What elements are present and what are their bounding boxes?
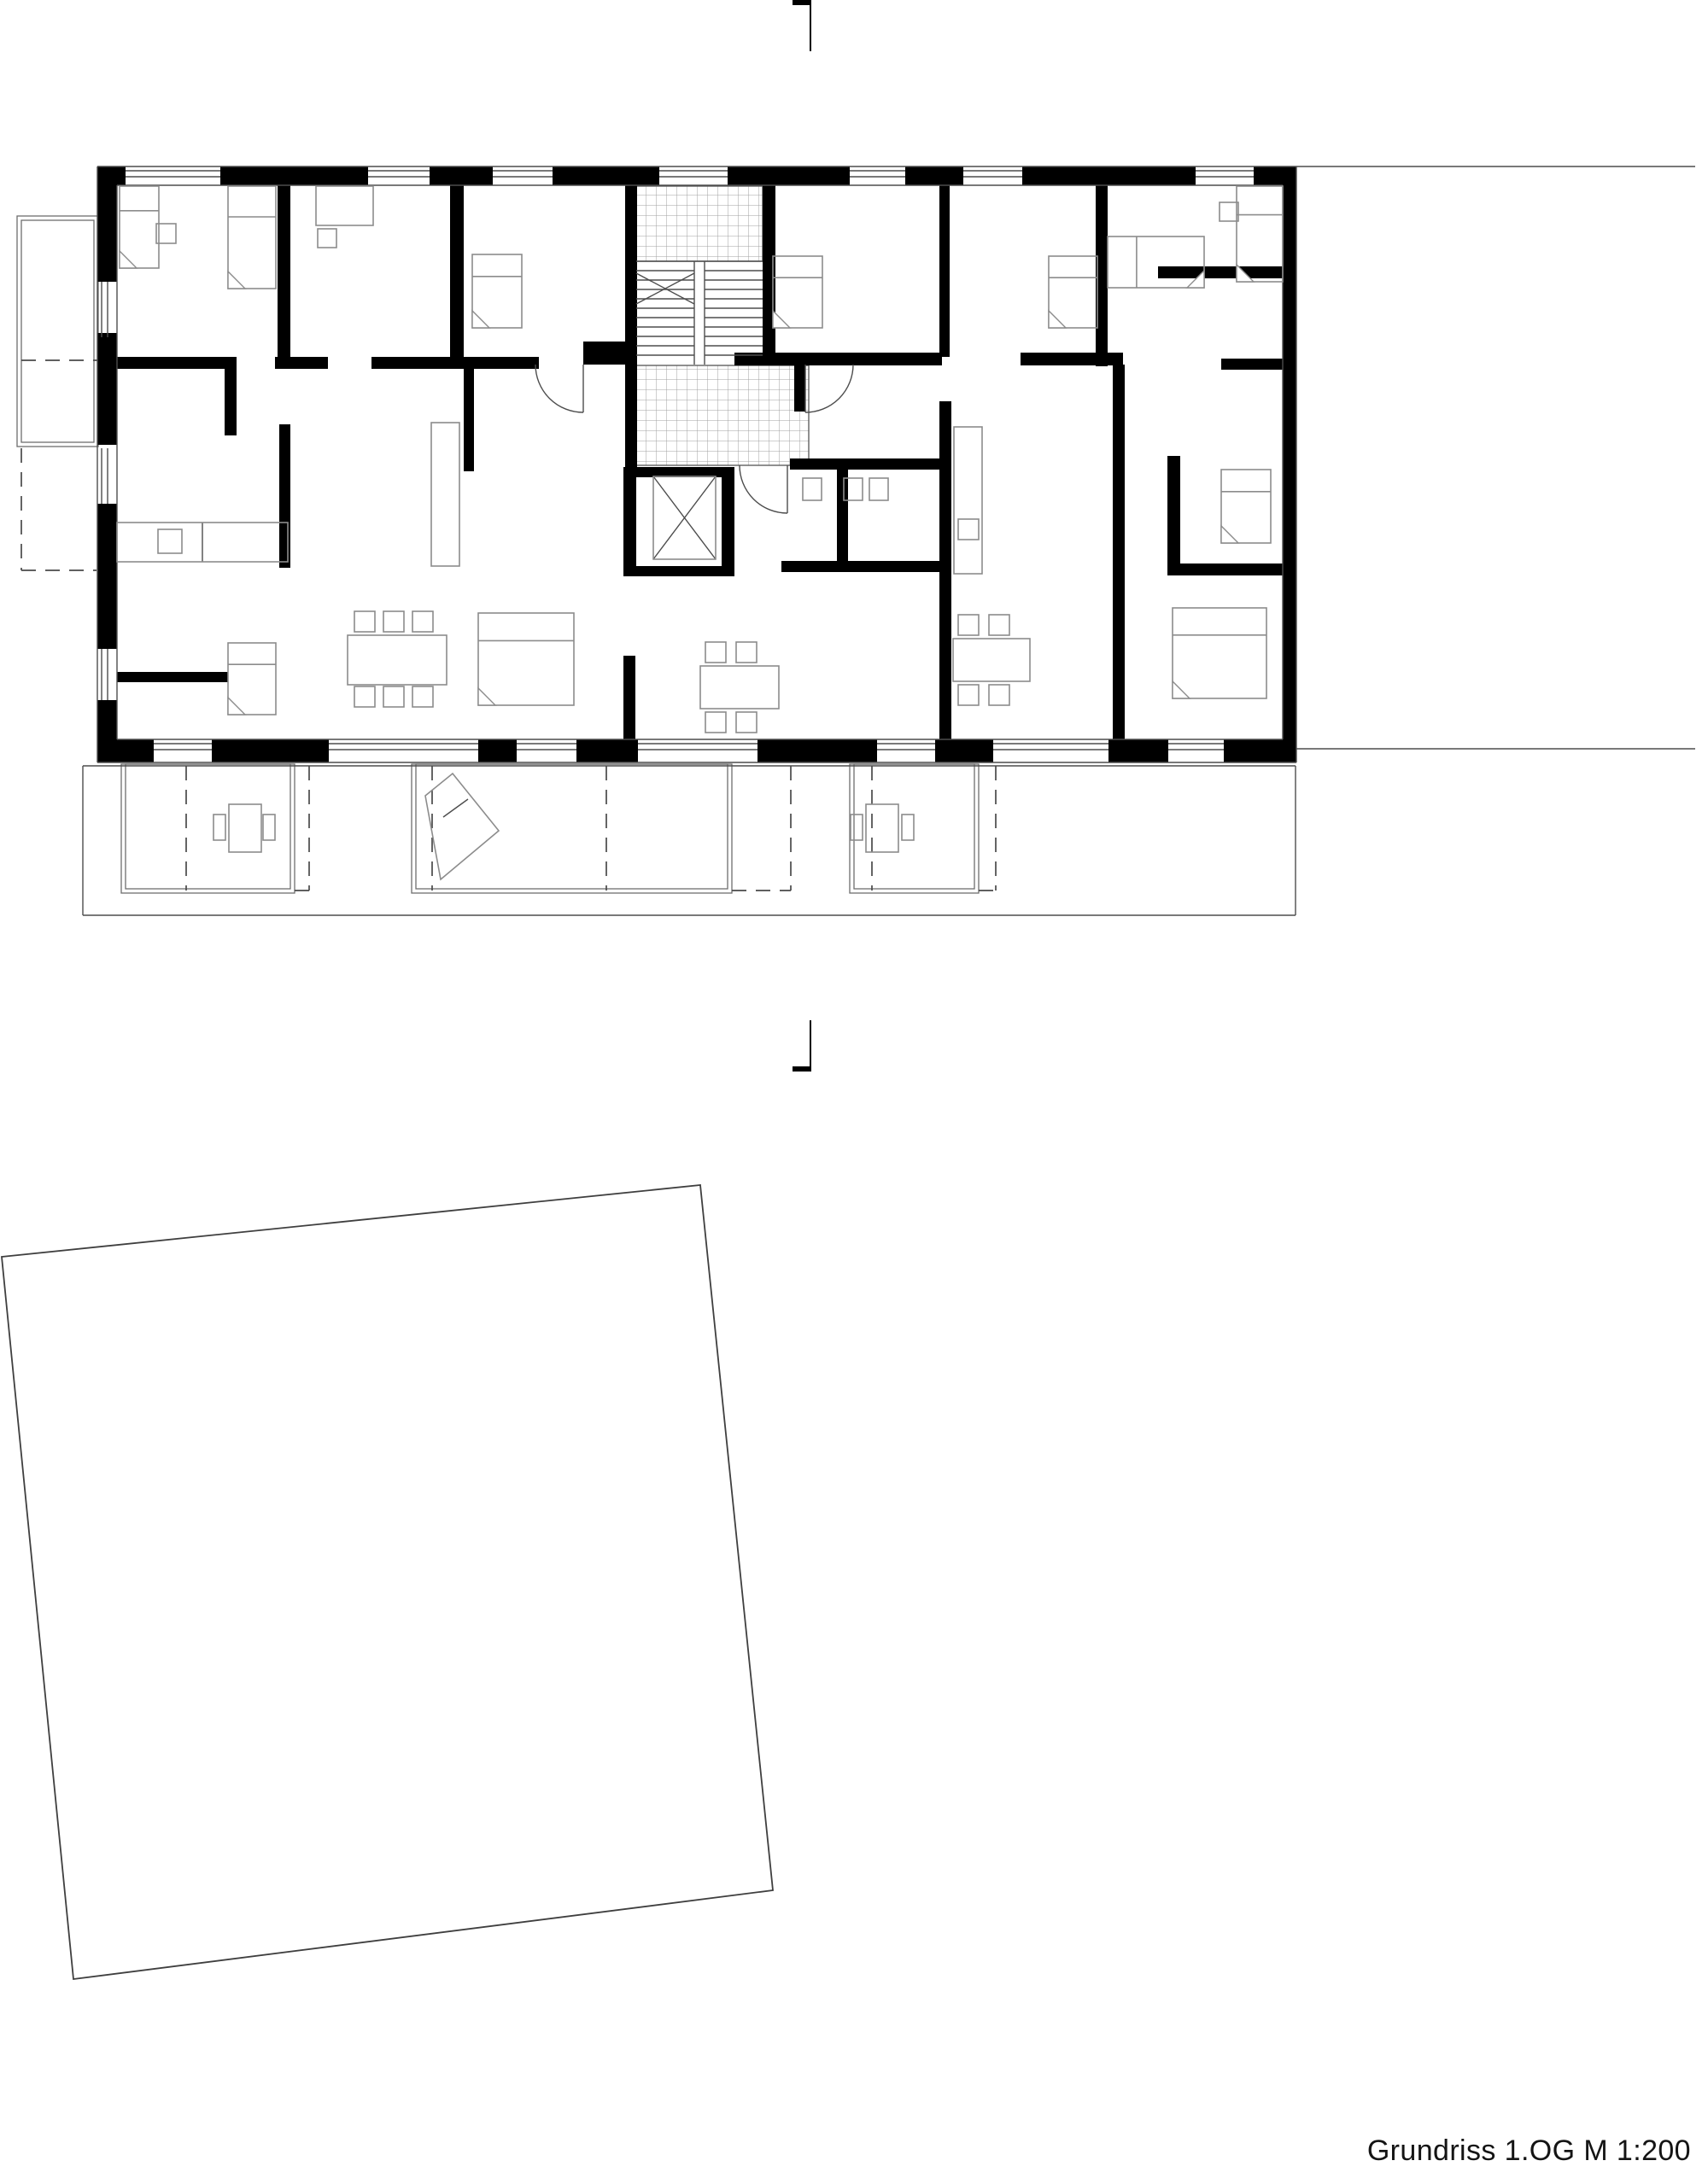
wall-segment — [279, 424, 290, 568]
wall-segment — [275, 357, 328, 369]
lounge-chair — [425, 774, 499, 879]
furniture-item — [736, 642, 757, 663]
door-swing-arc — [535, 365, 583, 412]
duvet-fold — [478, 688, 495, 705]
wall-segment — [757, 739, 877, 762]
wall-segment — [1108, 739, 1168, 762]
furniture-item — [213, 815, 225, 840]
furniture-item — [989, 615, 1009, 635]
outline-lines — [83, 166, 1695, 915]
wall-segment — [1113, 365, 1125, 739]
bed-frame — [1108, 237, 1204, 288]
wall-segment — [464, 369, 474, 471]
bed — [472, 254, 522, 328]
wall-segment — [430, 166, 493, 185]
bed-frame — [228, 643, 276, 715]
wall-segment — [450, 185, 464, 369]
wall-segment — [1158, 266, 1283, 278]
wall-segment — [117, 672, 228, 682]
wall-segment — [278, 185, 290, 359]
wall-segment — [939, 185, 950, 357]
wall-segment — [623, 656, 635, 739]
bed — [1221, 470, 1271, 543]
balcony-outline — [416, 764, 728, 889]
wall-segment — [1221, 359, 1283, 370]
furniture-item — [953, 639, 1030, 681]
furniture-item — [866, 804, 898, 852]
bed — [1049, 256, 1097, 328]
furniture-item — [158, 529, 182, 553]
wall-segment — [722, 467, 734, 576]
wall-segment — [1021, 353, 1123, 365]
furniture-item — [318, 229, 336, 248]
furniture-item — [354, 686, 375, 707]
wall-segment — [117, 357, 237, 369]
bed — [478, 613, 574, 705]
bed — [1108, 237, 1204, 288]
wall-segment — [837, 465, 848, 561]
furniture-item — [958, 615, 979, 635]
furniture-item — [803, 478, 822, 500]
bed-frame — [1049, 256, 1097, 328]
wall-segment — [478, 739, 517, 762]
wall-segment — [97, 700, 117, 762]
door-swing-arc — [740, 465, 787, 513]
duvet-fold — [1221, 526, 1238, 543]
drawing-title: Grundriss 1.OG M 1:200 — [1366, 2134, 1691, 2168]
adjacent-building-outline — [2, 1185, 773, 1979]
furniture-item — [958, 519, 979, 540]
bed-frame — [1173, 608, 1266, 698]
bed-frame — [773, 256, 822, 328]
wall-segment — [1167, 456, 1180, 564]
balcony-outline — [126, 764, 290, 889]
balcony-outline — [121, 764, 295, 893]
furniture-item — [954, 427, 982, 574]
furniture-item — [958, 685, 979, 705]
duvet-fold — [228, 272, 245, 289]
site-outline — [2, 1185, 773, 1979]
wall-segment — [225, 369, 237, 435]
furniture-item — [700, 666, 779, 709]
bed-frame — [1221, 470, 1271, 543]
bed-frame — [478, 613, 574, 705]
wall-segment — [734, 353, 942, 365]
bed — [1173, 608, 1266, 698]
duvet-fold — [773, 311, 790, 328]
balcony-outline — [412, 764, 732, 893]
wall-segment — [583, 342, 636, 365]
furniture-item — [412, 686, 433, 707]
bed-frame — [120, 186, 159, 268]
floor-plan-svg — [0, 0, 1708, 2184]
furniture-item — [316, 186, 373, 225]
wall-segment — [625, 185, 637, 467]
balcony-terrace-outlines — [17, 216, 979, 893]
outline-line — [443, 799, 468, 817]
wall-segment — [576, 739, 638, 762]
furniture-item — [705, 642, 726, 663]
furniture-item — [348, 635, 447, 685]
wall-segment — [220, 166, 368, 185]
duvet-fold — [472, 311, 489, 328]
furniture-item — [383, 611, 404, 632]
balcony-outline — [17, 216, 98, 447]
furniture-item — [705, 712, 726, 733]
wall-segment — [854, 353, 897, 365]
wall-segment — [636, 566, 722, 576]
bed — [228, 186, 276, 289]
wall-segment — [781, 561, 944, 572]
furniture-item — [229, 804, 261, 852]
duvet-fold — [120, 251, 137, 268]
furniture-item — [902, 815, 914, 840]
furniture-item — [736, 712, 757, 733]
furniture-item — [431, 423, 459, 566]
furniture-item — [989, 685, 1009, 705]
furniture-item — [851, 815, 863, 840]
bed-frame — [472, 254, 522, 328]
wall-segment — [1022, 166, 1196, 185]
duvet-fold — [1173, 681, 1190, 698]
bed — [773, 256, 822, 328]
furniture-item — [1220, 202, 1238, 221]
furniture-item — [263, 815, 275, 840]
bed-frame — [228, 186, 276, 289]
wall-segment — [794, 365, 805, 412]
wall-segment — [790, 458, 942, 470]
duvet-fold — [228, 698, 245, 715]
wall-segment — [1283, 166, 1296, 762]
door-swing-arc — [805, 365, 853, 412]
furniture-item — [383, 686, 404, 707]
wall-segment — [371, 357, 539, 369]
tiled-floor — [636, 186, 763, 261]
wall-segment — [1167, 564, 1283, 575]
furniture-item — [354, 611, 375, 632]
bed — [228, 643, 276, 715]
wall-segment — [728, 166, 850, 185]
wall-segment — [935, 739, 993, 762]
tiled-floor — [626, 365, 809, 465]
wall-segment — [97, 166, 117, 282]
duvet-fold — [1049, 311, 1066, 328]
wall-segment — [97, 504, 117, 649]
bed — [120, 186, 159, 268]
furniture-item — [412, 611, 433, 632]
wall-segment — [212, 739, 329, 762]
wall-segment — [553, 166, 659, 185]
wall-segment — [905, 166, 963, 185]
balcony-outline — [21, 220, 94, 442]
floor-plan-page: Grundriss 1.OG M 1:200 — [0, 0, 1708, 2184]
wall-segment — [623, 467, 636, 576]
section-marks — [793, 3, 811, 1070]
wall-segment — [97, 333, 117, 445]
furniture-item — [869, 478, 888, 500]
